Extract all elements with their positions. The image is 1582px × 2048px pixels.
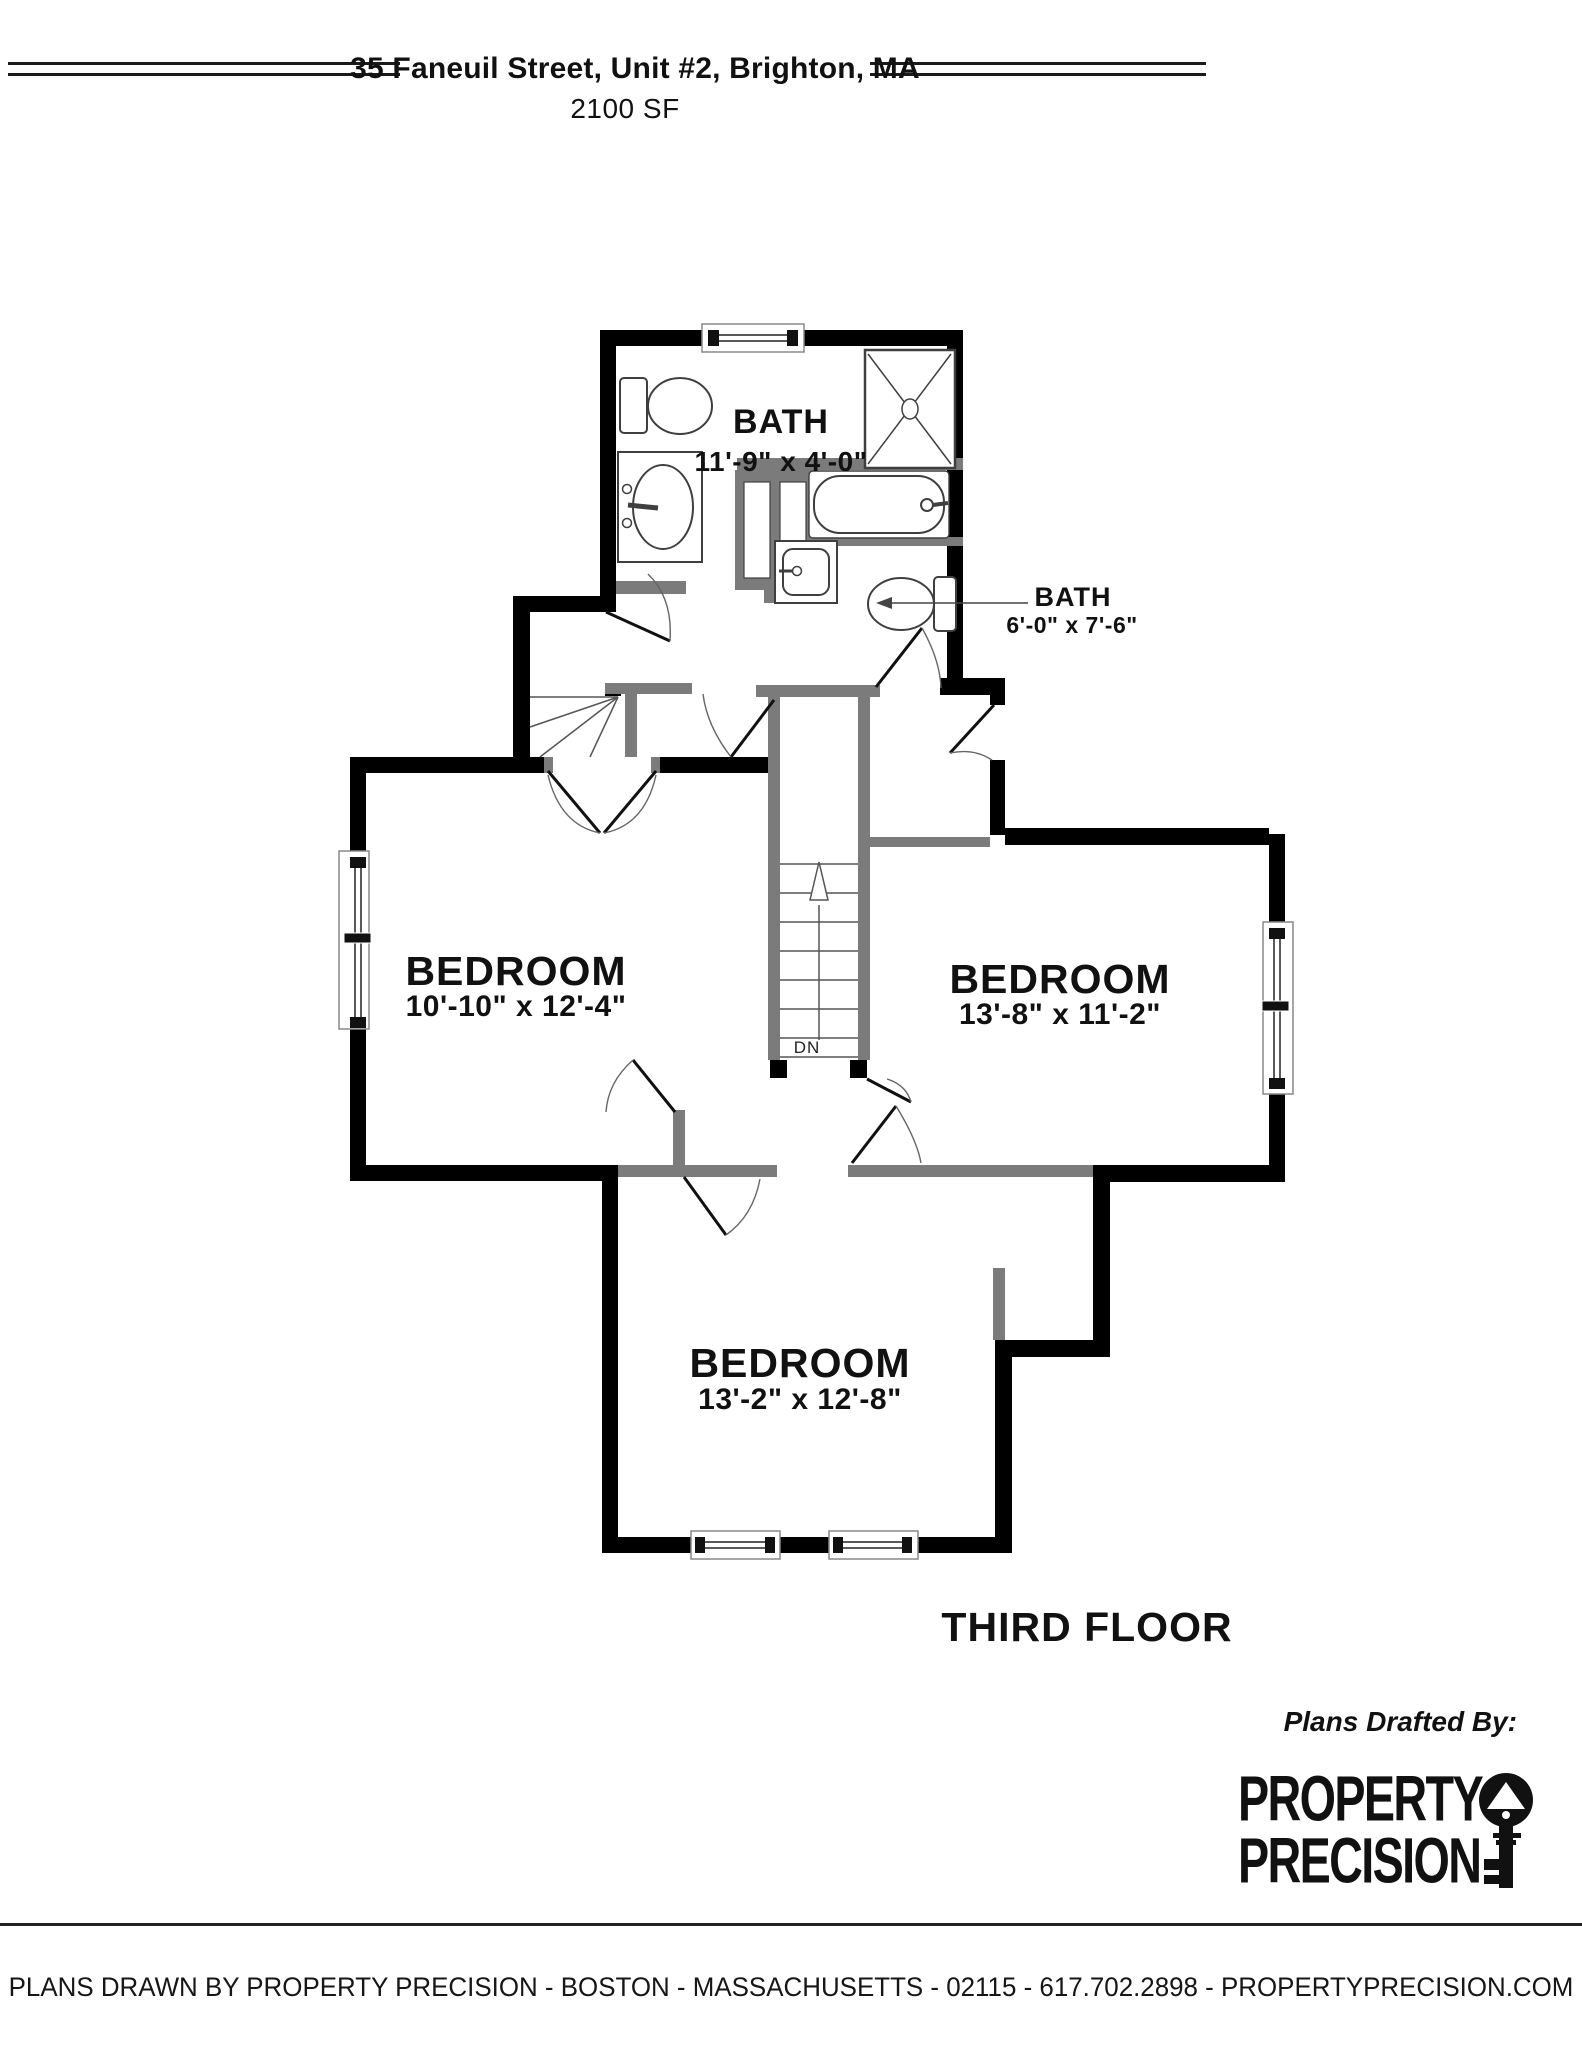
room-dims-bedroom-bottom: 13'-2" x 12'-8" bbox=[698, 1383, 902, 1417]
window-left bbox=[339, 851, 371, 1029]
door-stair-bottom bbox=[867, 1079, 911, 1102]
door-bath-right bbox=[876, 628, 941, 688]
stair-winders bbox=[530, 697, 618, 757]
room-dims-bath-top: 11'-9" x 4'-0" bbox=[695, 446, 868, 478]
toilet-icon bbox=[620, 378, 712, 434]
room-label-bath-top: BATH bbox=[733, 403, 829, 442]
staircase bbox=[780, 862, 858, 1057]
footer-rule bbox=[0, 1923, 1582, 1926]
room-dims-bath-right: 6'-0" x 7'-6" bbox=[1006, 612, 1137, 639]
logo-property-precision: PROPERTY PRECISION bbox=[1238, 1768, 1536, 1887]
window-bottom-right bbox=[829, 1531, 918, 1559]
logo-line-2: PRECISION bbox=[1238, 1830, 1482, 1894]
door-bedroom-bottom-b bbox=[852, 1106, 921, 1163]
room-label-bedroom-bottom: BEDROOM bbox=[689, 1340, 910, 1387]
bathroom-sink-icon bbox=[618, 452, 702, 562]
door-bedroom-left-lower bbox=[606, 1060, 675, 1112]
window-top bbox=[702, 324, 804, 352]
shower-icon bbox=[865, 350, 955, 468]
bathtub-icon bbox=[809, 471, 949, 538]
door-bedroom-right bbox=[950, 705, 994, 760]
room-label-bath-right: BATH bbox=[1035, 582, 1112, 613]
stairs-down-label: DN bbox=[794, 1038, 821, 1058]
floor-plan-drawing bbox=[0, 0, 1582, 2048]
room-dims-bedroom-left: 10'-10" x 12'-4" bbox=[406, 990, 627, 1024]
window-right bbox=[1262, 922, 1293, 1094]
door-bedroom-bottom-a bbox=[684, 1177, 760, 1235]
double-doors-bedroom-left bbox=[548, 771, 656, 833]
footer-credit-line: PLANS DRAWN BY PROPERTY PRECISION - BOST… bbox=[9, 1972, 1574, 2003]
door-hall-stairs bbox=[703, 694, 774, 757]
window-bottom-left bbox=[691, 1531, 780, 1559]
logo-line-1: PROPERTY bbox=[1238, 1768, 1482, 1832]
floor-plan-sheet: 35 Faneuil Street, Unit #2, Brighton, MA… bbox=[0, 0, 1582, 2048]
drafted-by-label: Plans Drafted By: bbox=[1284, 1706, 1517, 1738]
room-label-bedroom-left: BEDROOM bbox=[405, 948, 626, 995]
room-label-bedroom-right: BEDROOM bbox=[949, 956, 1170, 1003]
floor-title: THIRD FLOOR bbox=[941, 1604, 1232, 1651]
room-dims-bedroom-right: 13'-8" x 11'-2" bbox=[959, 998, 1161, 1032]
small-sink-icon bbox=[775, 541, 837, 603]
